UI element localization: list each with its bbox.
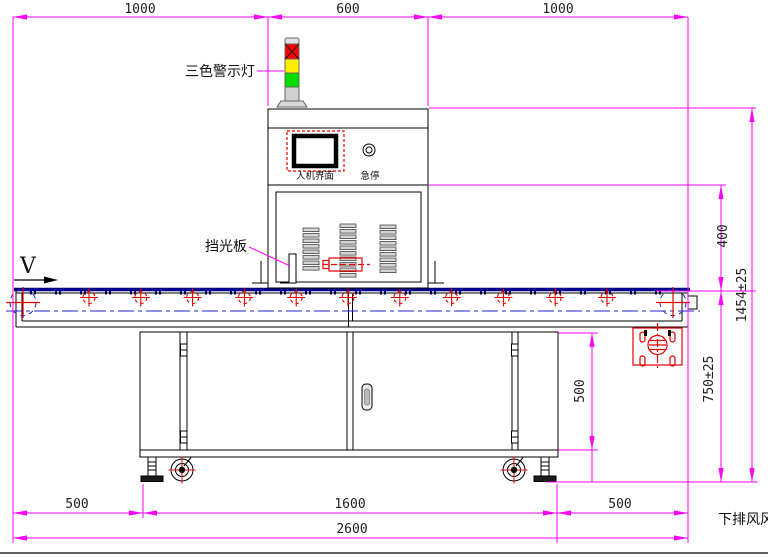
hinge [181, 431, 188, 443]
right-dimensions: 400 750±25 1454±25 [429, 108, 758, 482]
louver-column-3 [380, 225, 396, 273]
callouts: 三色警示灯 挡光板 人机界面 急停 V 下排风风 [14, 63, 768, 528]
dim-bottom-center: 1600 [334, 497, 365, 512]
estop-label: 急停 [360, 170, 380, 182]
estop-button[interactable] [363, 144, 375, 156]
dim-head-to-belt: 400 [716, 224, 731, 247]
tower-light-stem [285, 87, 299, 101]
dim-bottom-right: 500 [608, 497, 631, 512]
warning-light-label: 三色警示灯 [185, 63, 255, 80]
dim-total-height: 1454±25 [735, 268, 750, 323]
louver-column-2 [340, 224, 356, 277]
green-lamp [285, 73, 299, 87]
drive-motor [633, 323, 682, 371]
leveling-foot-left [141, 457, 163, 482]
base-cabinet [140, 332, 558, 484]
right-pulley [656, 287, 690, 318]
top-dimensions: 1000 600 1000 [13, 2, 688, 543]
caster-wheel-left [169, 457, 196, 484]
dim-total-length: 2600 [336, 522, 367, 537]
cabinet-height-dimension: 500 [558, 333, 598, 482]
exhaust-note: 下排风风 [718, 512, 768, 528]
bottom-dimensions: 500 1600 500 2600 [13, 484, 688, 543]
dim-bottom-left: 500 [65, 497, 88, 512]
right-mount-bracket [428, 261, 444, 283]
dim-cabinet-height: 500 [573, 379, 588, 402]
belt-direction-label: V [19, 254, 37, 279]
door-handle[interactable] [362, 384, 372, 410]
base-cabinet-body [140, 332, 558, 457]
caster-wheel-right [501, 457, 528, 484]
hinge [512, 344, 519, 356]
dim-top-right: 1000 [542, 2, 573, 17]
cad-drawing-canvas: 1000 600 1000 400 750±25 1454±25 500 500… [0, 0, 768, 557]
louver-column-1 [303, 228, 319, 270]
hmi-screen[interactable] [294, 136, 336, 166]
dim-top-center: 600 [336, 2, 359, 17]
conveyor [6, 287, 700, 327]
head-cabinet [252, 109, 444, 288]
tower-light-cap [285, 38, 299, 44]
machine-drawing: 1000 600 1000 400 750±25 1454±25 500 500… [0, 0, 768, 557]
hinge [181, 344, 188, 356]
dim-belt-height: 750±25 [702, 356, 717, 403]
light-shield-plate [280, 254, 296, 283]
hinge [512, 431, 519, 443]
tower-light [277, 38, 307, 107]
dim-top-left: 1000 [124, 2, 155, 17]
left-mount-bracket [252, 261, 268, 283]
tower-light-base [277, 101, 307, 107]
light-shield-label: 挡光板 [205, 239, 247, 255]
leader-line [249, 247, 290, 266]
yellow-lamp [285, 59, 299, 73]
hmi-label: 人机界面 [296, 170, 334, 182]
leveling-foot-right [534, 457, 556, 482]
